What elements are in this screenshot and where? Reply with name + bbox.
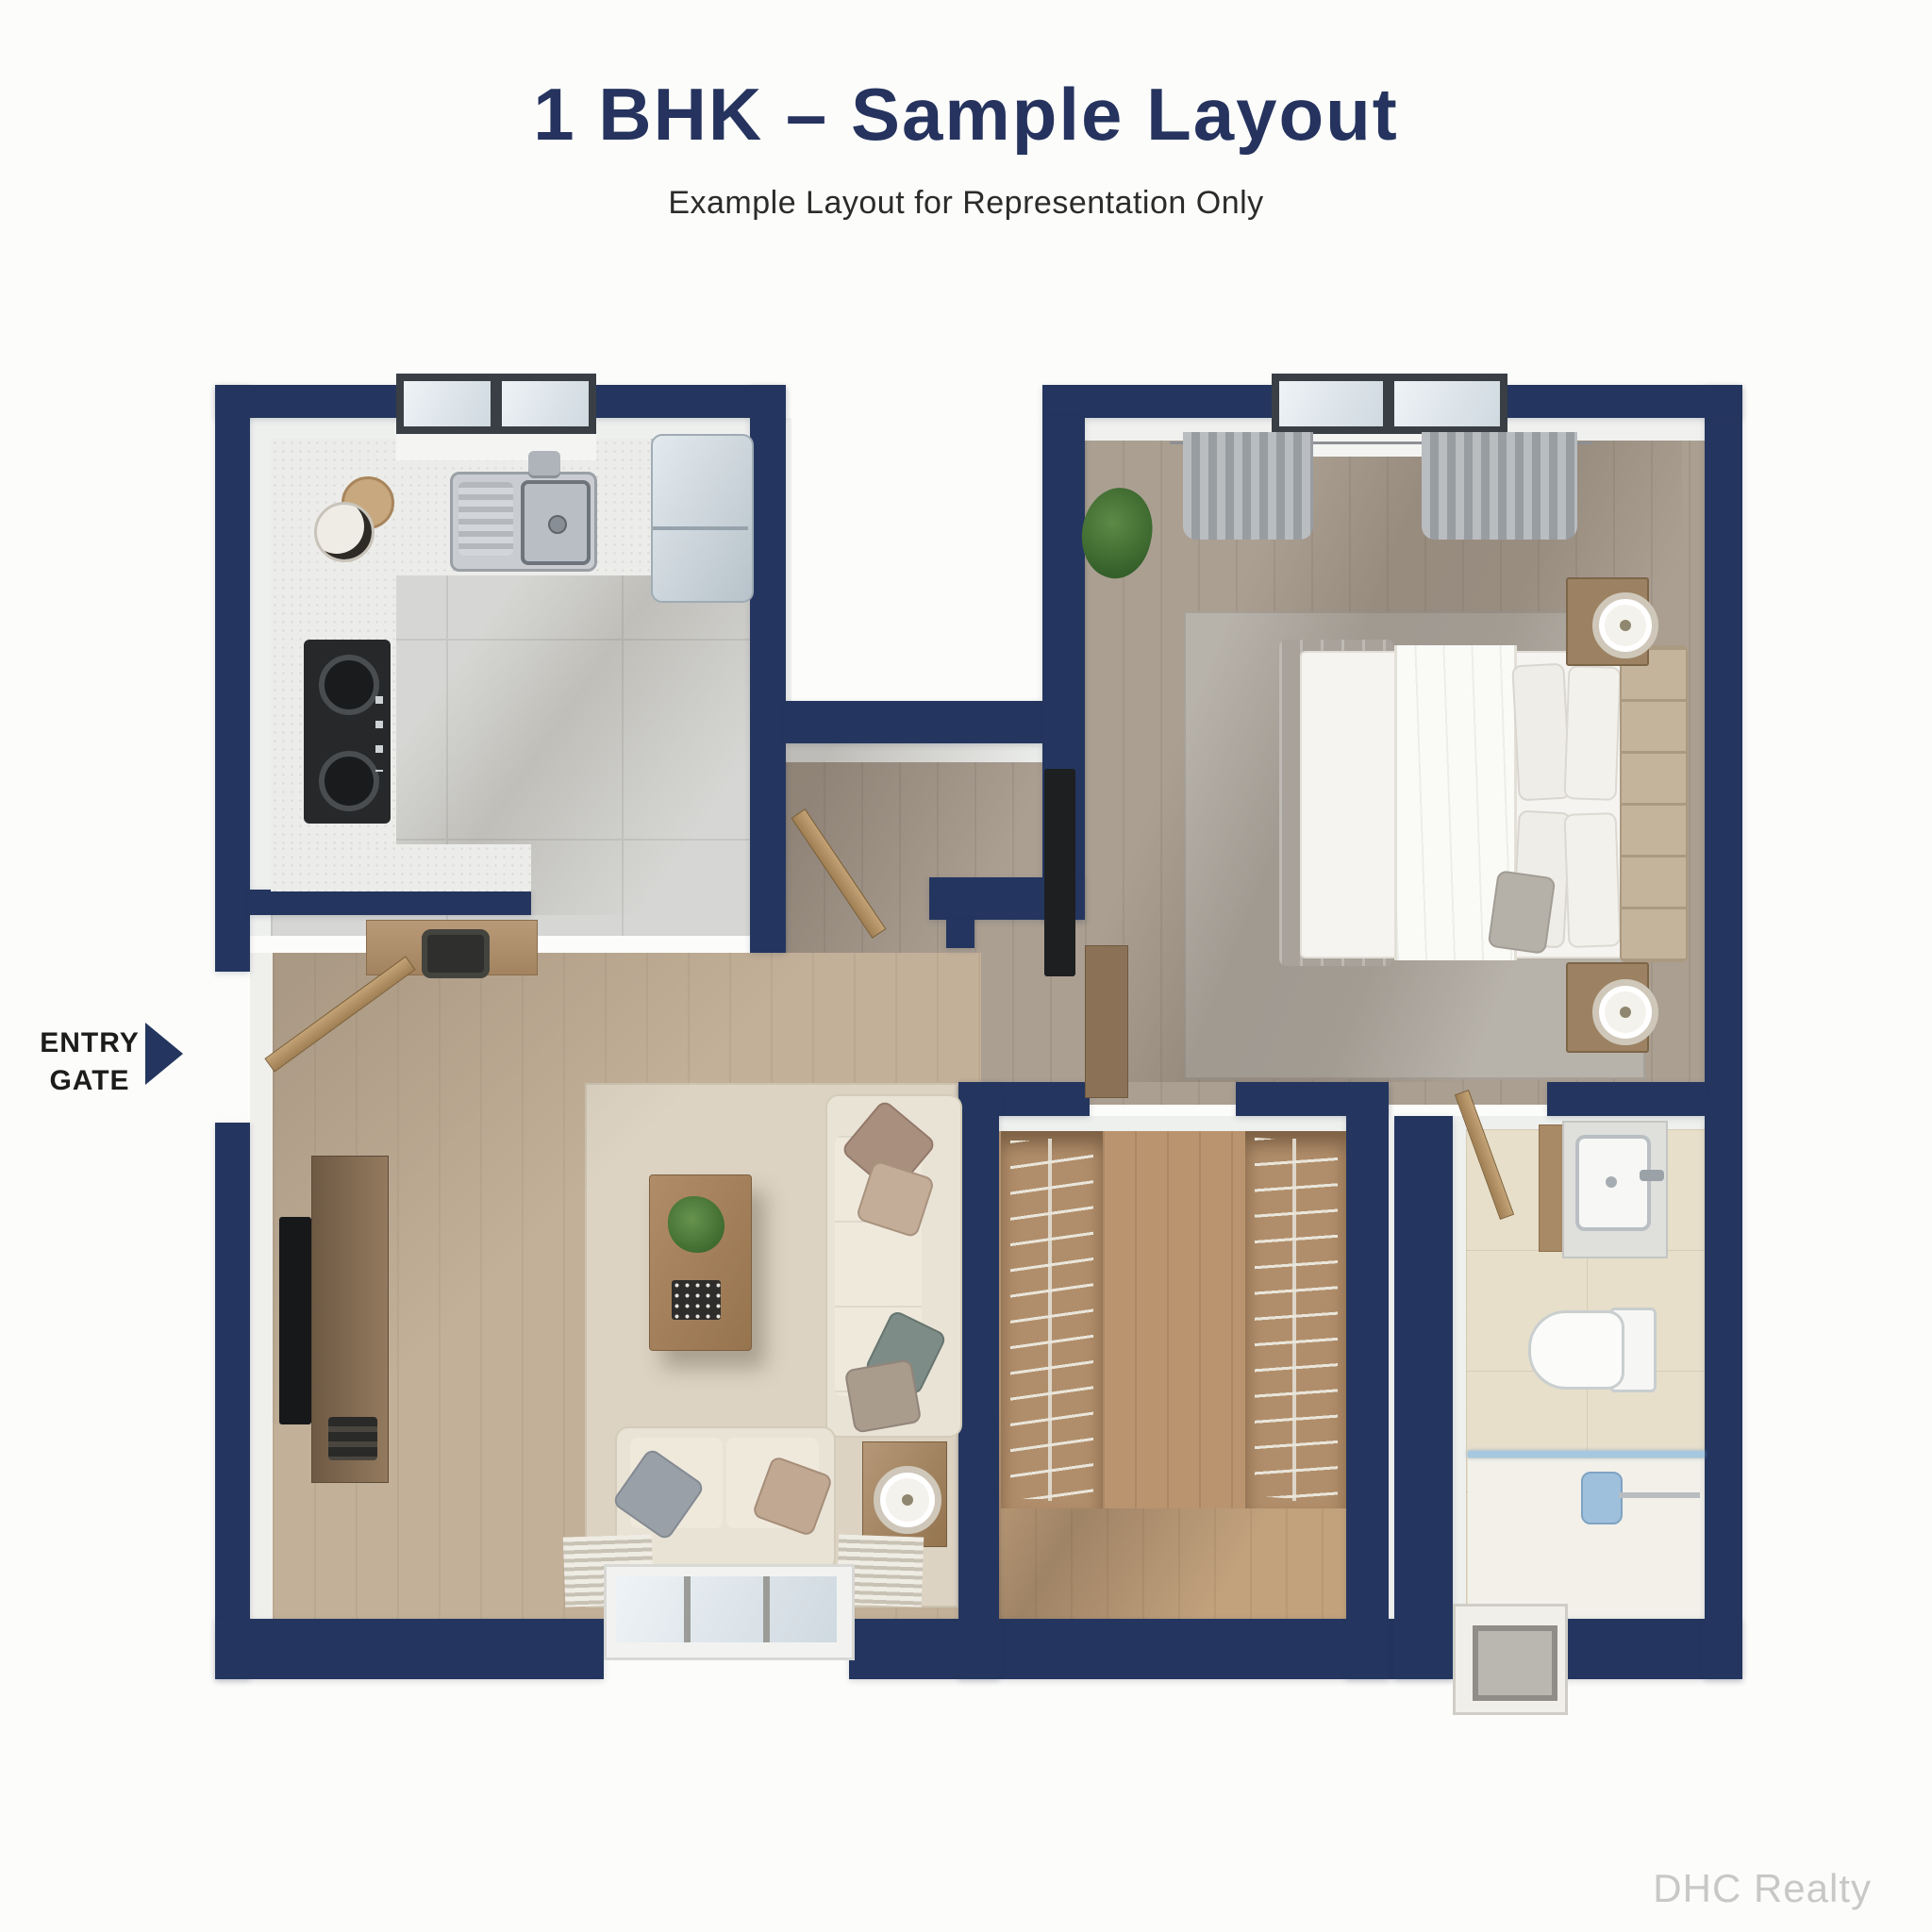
basin-drain	[1606, 1176, 1617, 1188]
entry-gate-line2: GATE	[38, 1062, 142, 1100]
wall-left-lower	[215, 1123, 250, 1679]
stove-burner	[319, 751, 379, 811]
curtain-left	[1183, 432, 1313, 540]
kitchen-sink	[450, 472, 597, 572]
living-window-glass	[616, 1576, 837, 1642]
kitchen-window-sill	[396, 434, 596, 460]
media-items	[328, 1417, 377, 1460]
watermark: DHC Realty	[1653, 1866, 1872, 1911]
bed-accent-pillow	[1488, 870, 1557, 955]
living-window-mullion	[684, 1576, 691, 1642]
coffee-table-plant	[668, 1196, 724, 1253]
gas-stove	[304, 640, 391, 824]
wardrobe-right-unit	[1245, 1131, 1346, 1508]
kitchen-window-glass	[502, 381, 589, 426]
toilet	[1528, 1307, 1651, 1387]
wall-bottom-left	[215, 1619, 604, 1679]
wardrobe-left-unit	[1001, 1131, 1103, 1508]
kitchen-window-glass	[404, 381, 491, 426]
shower-tray	[1453, 1604, 1568, 1715]
wall-left-upper	[215, 385, 250, 972]
bedroom-window-glass	[1394, 381, 1500, 426]
curtain-right	[1422, 432, 1577, 540]
living-window-mullion	[763, 1576, 770, 1642]
stove-knobs	[375, 696, 383, 772]
page-subtitle: Example Layout for Representation Only	[0, 185, 1932, 222]
shower-drain	[1473, 1625, 1557, 1701]
hangers	[1255, 1138, 1338, 1502]
wall-kitchen-bottom	[250, 890, 531, 915]
coffee-table-tray	[672, 1280, 721, 1320]
hangers	[1010, 1141, 1093, 1499]
kitchen-worktop-bottom	[271, 844, 531, 891]
washbasin	[1575, 1135, 1651, 1231]
wall-wardrobe-left	[958, 1082, 999, 1679]
plant-leaves	[1072, 480, 1161, 585]
nightstand-lamp	[1592, 979, 1658, 1045]
fridge	[651, 434, 754, 603]
shower-arm	[1619, 1492, 1700, 1498]
wall-notch-bottom	[786, 701, 1042, 743]
floor-plan-canvas: 1 BHK – Sample Layout Example Layout for…	[0, 0, 1932, 1932]
vanity-cabinet	[1539, 1124, 1564, 1252]
sink-drain	[548, 515, 567, 534]
wall-kitchen-right	[750, 385, 786, 953]
wall-wardrobe-right	[1346, 1082, 1389, 1679]
toilet-bowl	[1528, 1310, 1624, 1390]
bedroom-tv	[1044, 769, 1075, 976]
kitchen-pot	[314, 502, 375, 562]
sink-drainboard	[458, 482, 513, 556]
bed-pillow	[1564, 812, 1622, 948]
bedroom-window-glass	[1279, 381, 1383, 426]
bed-headboard	[1620, 645, 1688, 962]
stove-burner	[319, 655, 379, 715]
side-table-lamp	[874, 1466, 941, 1534]
wardrobe-center-panel	[1103, 1131, 1245, 1508]
sink-basin	[521, 480, 591, 565]
page-title: 1 BHK – Sample Layout	[0, 72, 1932, 158]
basin-faucet	[1640, 1170, 1664, 1181]
bed-pillow	[1564, 665, 1622, 801]
shower-head-plate	[1581, 1472, 1623, 1524]
entry-gate-label: ENTRY GATE	[38, 1024, 142, 1100]
fridge-divider	[653, 526, 748, 530]
wall-right	[1705, 385, 1742, 1679]
entry-arrow-icon	[145, 1023, 183, 1085]
nightstand-lamp	[1592, 592, 1658, 658]
bedroom-plant	[1082, 488, 1152, 591]
kitchen-faucet	[528, 451, 560, 475]
living-window	[604, 1564, 855, 1660]
kitchen-window	[396, 374, 596, 434]
wall-bathroom-top	[1547, 1082, 1705, 1116]
entry-gate-line1: ENTRY	[38, 1024, 142, 1062]
sofa-pillow-taupe	[844, 1358, 923, 1433]
desk-chair	[422, 929, 490, 978]
bed-pillow	[1511, 663, 1571, 802]
bedroom-tv-console	[1085, 945, 1128, 1098]
tv	[279, 1217, 311, 1424]
wall-bathroom-left	[1394, 1116, 1453, 1679]
wall-foyer-stub-jamb	[946, 920, 974, 948]
bedroom-window	[1272, 374, 1507, 434]
shower-glass-partition	[1468, 1451, 1705, 1457]
